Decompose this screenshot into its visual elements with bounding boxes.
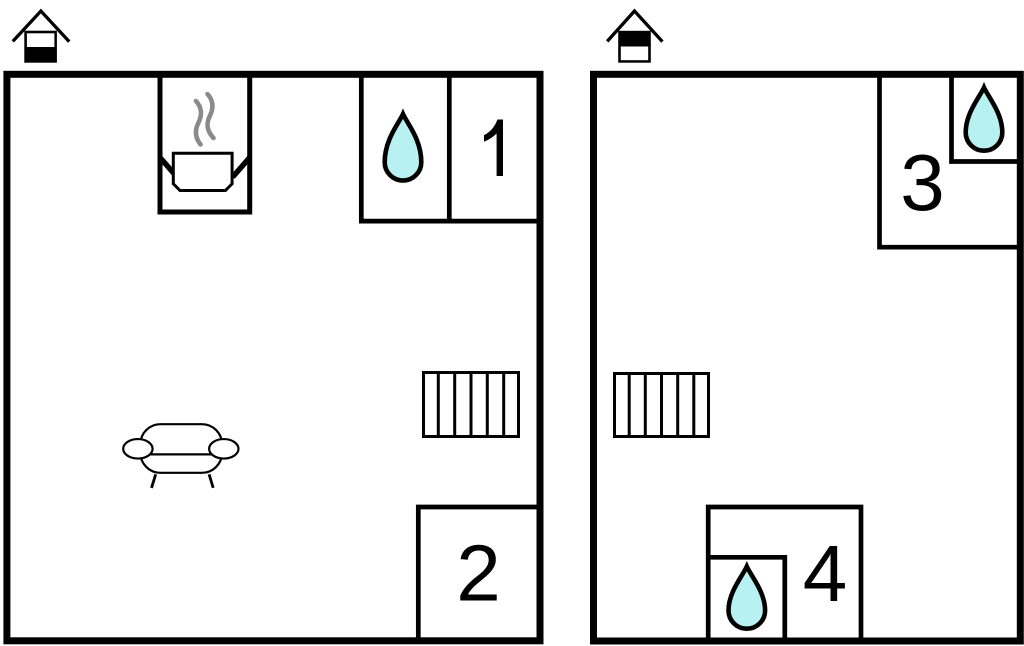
svg-text:3: 3 — [900, 138, 945, 227]
svg-text:4: 4 — [803, 529, 848, 618]
svg-text:2: 2 — [456, 529, 501, 618]
